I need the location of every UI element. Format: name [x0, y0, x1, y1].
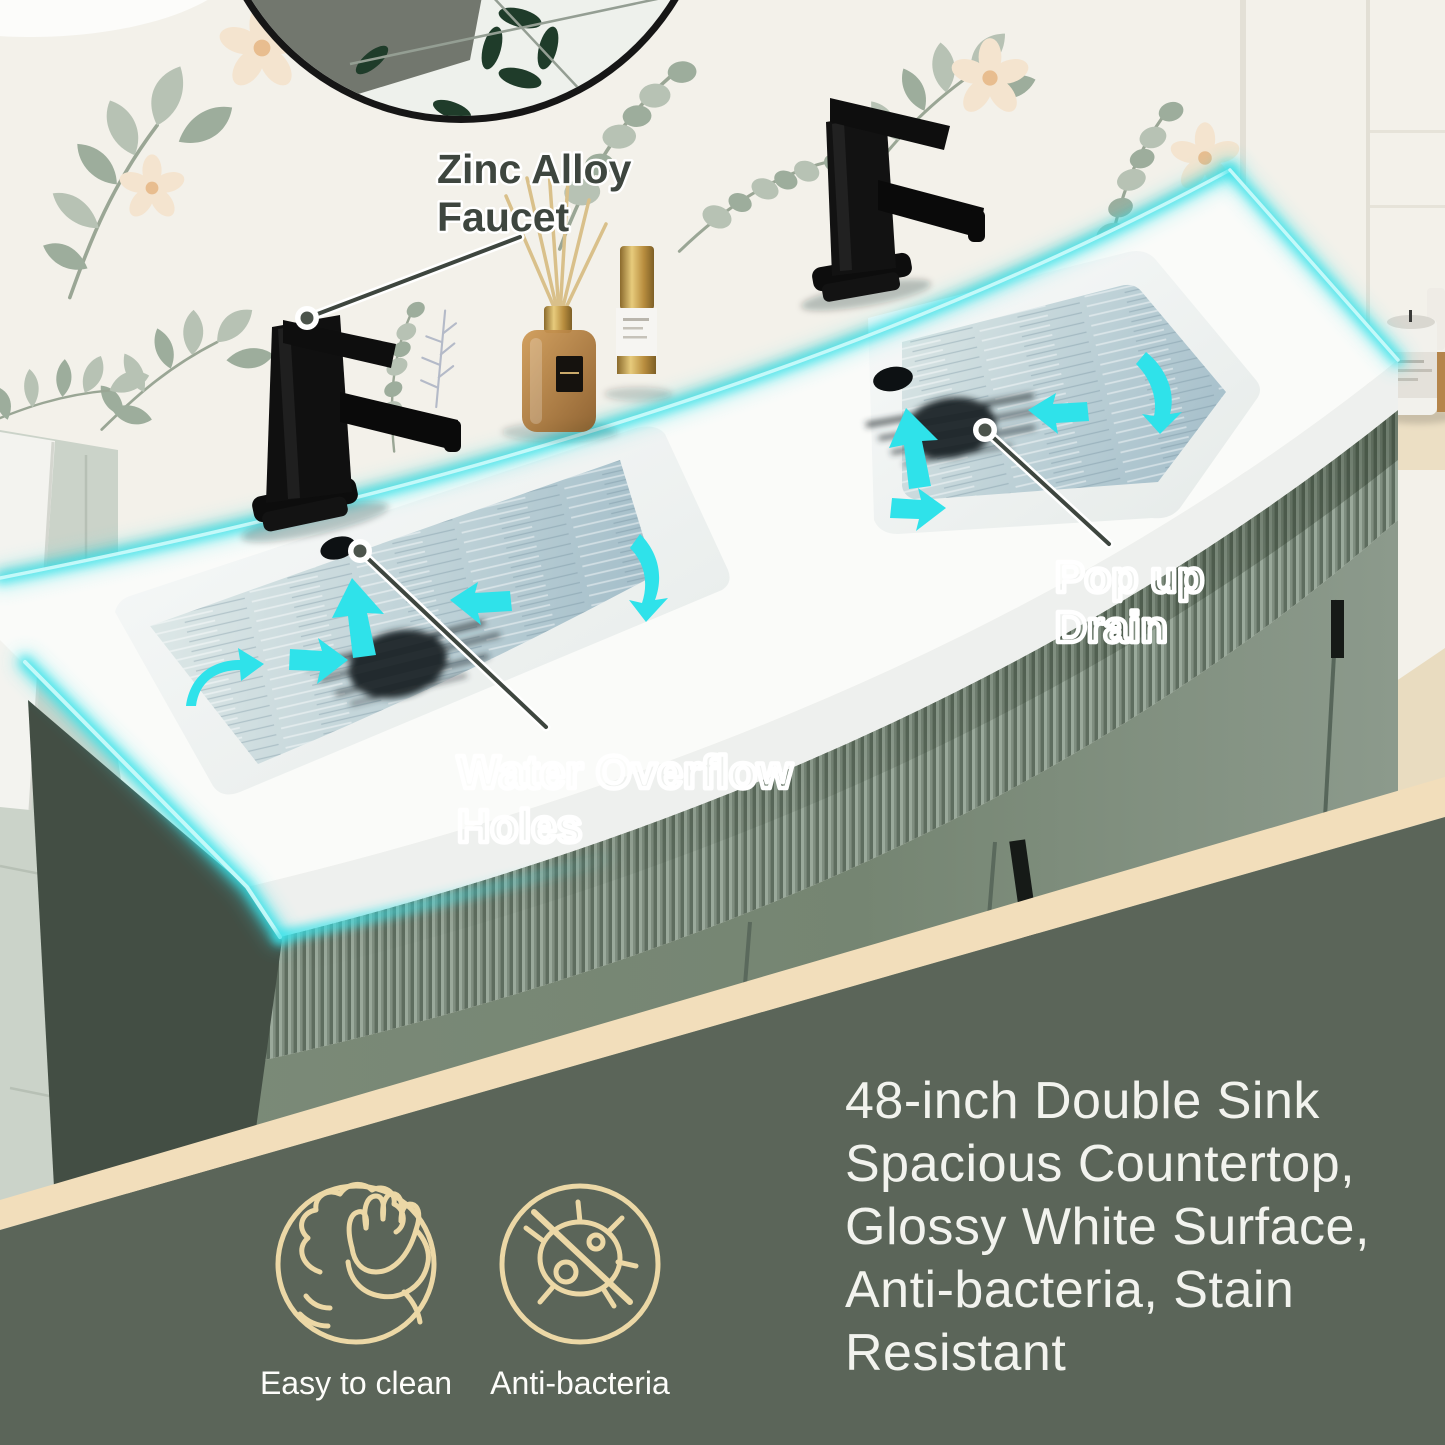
callout-drain-label-line1: Pop up — [1055, 553, 1204, 602]
description-line: Anti-bacteria, Stain — [845, 1261, 1294, 1319]
description-line: Glossy White Surface, — [845, 1198, 1370, 1256]
product-infographic: Zinc Alloy Faucet Water Overflow Holes P… — [0, 0, 1445, 1445]
callout-faucet-label-line2: Faucet — [437, 194, 569, 240]
callout-overflow-label-line2: Holes — [457, 800, 582, 852]
feature-label: Anti-bacteria — [490, 1365, 670, 1401]
amber-jar — [1437, 352, 1445, 412]
description-line: Resistant — [845, 1324, 1066, 1382]
callout-overflow-label-line1: Water Overflow — [457, 746, 793, 798]
callout-drain-label-line2: Drain — [1055, 603, 1167, 652]
description-line: 48-inch Double Sink — [845, 1072, 1320, 1130]
door-handle-right — [1331, 600, 1344, 658]
description-line: Spacious Countertop, — [845, 1135, 1355, 1193]
candle-wick — [1409, 310, 1412, 322]
callout-faucet-label-line1: Zinc Alloy — [437, 146, 632, 192]
feature-label: Easy to clean — [260, 1365, 452, 1401]
